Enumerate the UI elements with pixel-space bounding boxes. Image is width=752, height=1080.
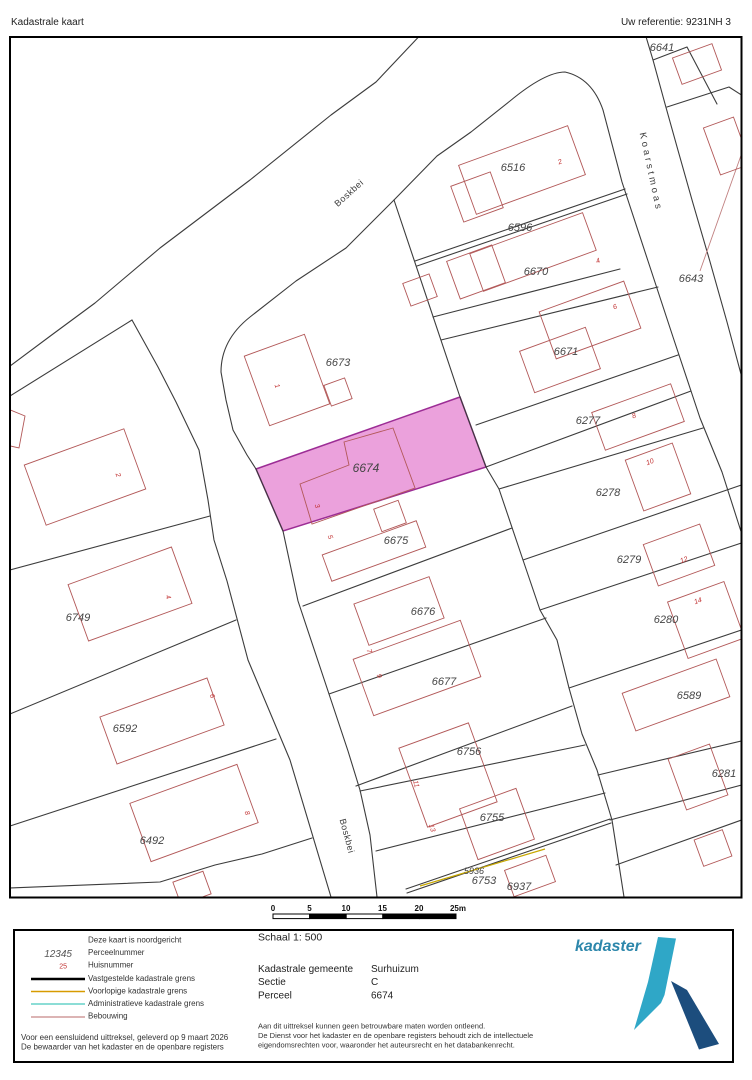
svg-text:6753: 6753	[472, 875, 497, 887]
svg-text:25: 25	[59, 964, 67, 971]
svg-text:Voorlopige kadastrale grens: Voorlopige kadastrale grens	[88, 987, 187, 996]
svg-text:6670: 6670	[524, 266, 549, 278]
svg-text:C: C	[371, 977, 378, 988]
svg-text:6596: 6596	[508, 222, 533, 234]
svg-text:kadaster: kadaster	[575, 938, 642, 955]
svg-text:6937: 6937	[507, 881, 532, 893]
svg-text:6755: 6755	[480, 812, 505, 824]
svg-text:Aan dit uittreksel kunnen geen: Aan dit uittreksel kunnen geen betrouwba…	[258, 1022, 485, 1031]
svg-text:Perceel: Perceel	[258, 991, 292, 1002]
svg-text:6278: 6278	[596, 487, 621, 499]
svg-text:Uw referentie: 9231NH 3: Uw referentie: 9231NH 3	[621, 17, 731, 28]
svg-text:6671: 6671	[554, 346, 578, 358]
svg-text:De bewaarder van het kadaster: De bewaarder van het kadaster en de open…	[21, 1043, 224, 1052]
svg-text:6592: 6592	[113, 723, 137, 735]
svg-text:6676: 6676	[411, 606, 436, 618]
svg-text:6281: 6281	[712, 768, 736, 780]
svg-text:6643: 6643	[679, 273, 704, 285]
svg-text:Kadastrale kaart: Kadastrale kaart	[11, 17, 84, 28]
svg-text:10: 10	[342, 904, 351, 913]
svg-text:6492: 6492	[140, 835, 164, 847]
svg-text:6277: 6277	[576, 415, 601, 427]
svg-text:6675: 6675	[384, 535, 409, 547]
svg-text:12345: 12345	[44, 949, 72, 960]
svg-text:6673: 6673	[326, 357, 351, 369]
svg-text:5: 5	[307, 904, 312, 913]
svg-text:6756: 6756	[457, 746, 482, 758]
svg-text:Schaal 1: 500: Schaal 1: 500	[258, 932, 322, 944]
svg-text:6674: 6674	[371, 991, 394, 1002]
svg-text:Administratieve kadastrale gre: Administratieve kadastrale grens	[88, 999, 204, 1008]
svg-text:6677: 6677	[432, 676, 457, 688]
svg-text:Huisnummer: Huisnummer	[88, 961, 134, 970]
svg-text:Sectie: Sectie	[258, 977, 286, 988]
svg-text:6674: 6674	[353, 461, 380, 475]
svg-text:6641: 6641	[650, 42, 674, 54]
svg-text:6279: 6279	[617, 554, 641, 566]
svg-text:25m: 25m	[450, 904, 466, 913]
svg-text:Perceelnummer: Perceelnummer	[88, 948, 145, 957]
svg-text:6749: 6749	[66, 612, 90, 624]
svg-text:Bebouwing: Bebouwing	[88, 1012, 128, 1021]
svg-text:6516: 6516	[501, 162, 526, 174]
svg-text:eigendomsrechten voor, waarond: eigendomsrechten voor, waaronder het aut…	[258, 1041, 515, 1050]
svg-text:6589: 6589	[677, 690, 701, 702]
svg-text:Surhuizum: Surhuizum	[371, 964, 419, 975]
svg-text:Deze kaart is noordgericht: Deze kaart is noordgericht	[88, 936, 182, 945]
svg-text:De Dienst voor het kadaster en: De Dienst voor het kadaster en de openba…	[258, 1031, 533, 1040]
svg-text:Vastgestelde kadastrale grens: Vastgestelde kadastrale grens	[88, 974, 195, 983]
svg-text:20: 20	[415, 904, 424, 913]
svg-text:0: 0	[271, 904, 276, 913]
svg-text:Voor een eensluidend uittrekse: Voor een eensluidend uittreksel, gelever…	[21, 1033, 229, 1042]
svg-text:Kadastrale gemeente: Kadastrale gemeente	[258, 964, 354, 975]
svg-text:15: 15	[378, 904, 387, 913]
svg-text:6280: 6280	[654, 614, 679, 626]
